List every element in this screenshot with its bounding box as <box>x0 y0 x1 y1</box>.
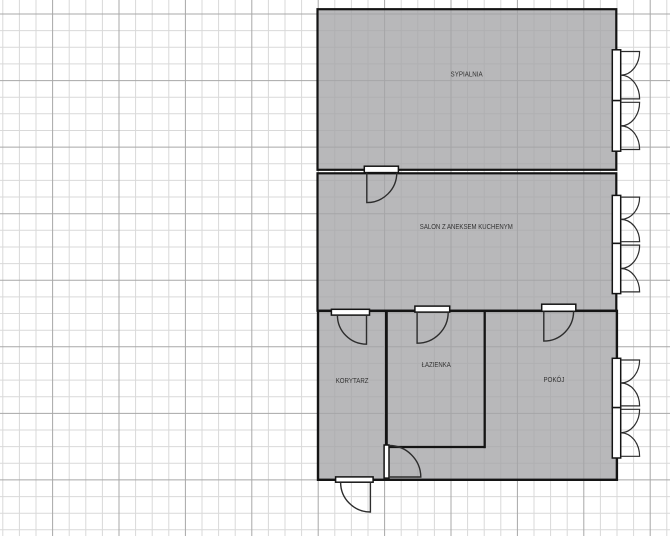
svg-text:KORYTARZ: KORYTARZ <box>336 376 369 385</box>
svg-text:POKÓJ: POKÓJ <box>544 375 565 384</box>
svg-text:ŁAZIENKA: ŁAZIENKA <box>422 360 451 369</box>
svg-text:SYPIALNIA: SYPIALNIA <box>451 70 483 79</box>
svg-text:SALON Z ANEKSEM KUCHENYM: SALON Z ANEKSEM KUCHENYM <box>420 222 513 231</box>
